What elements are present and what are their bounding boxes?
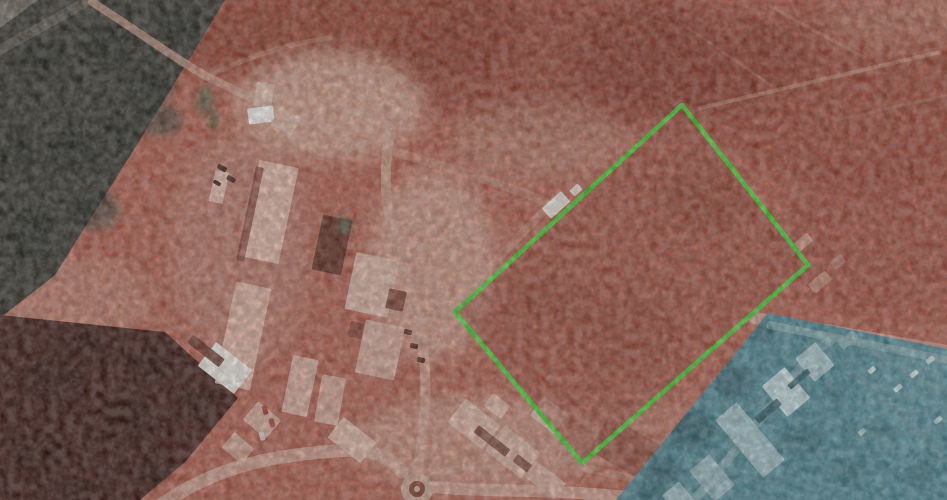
- satellite-image: [0, 0, 947, 500]
- grain-light: [0, 0, 947, 500]
- satellite-scene: [0, 0, 947, 500]
